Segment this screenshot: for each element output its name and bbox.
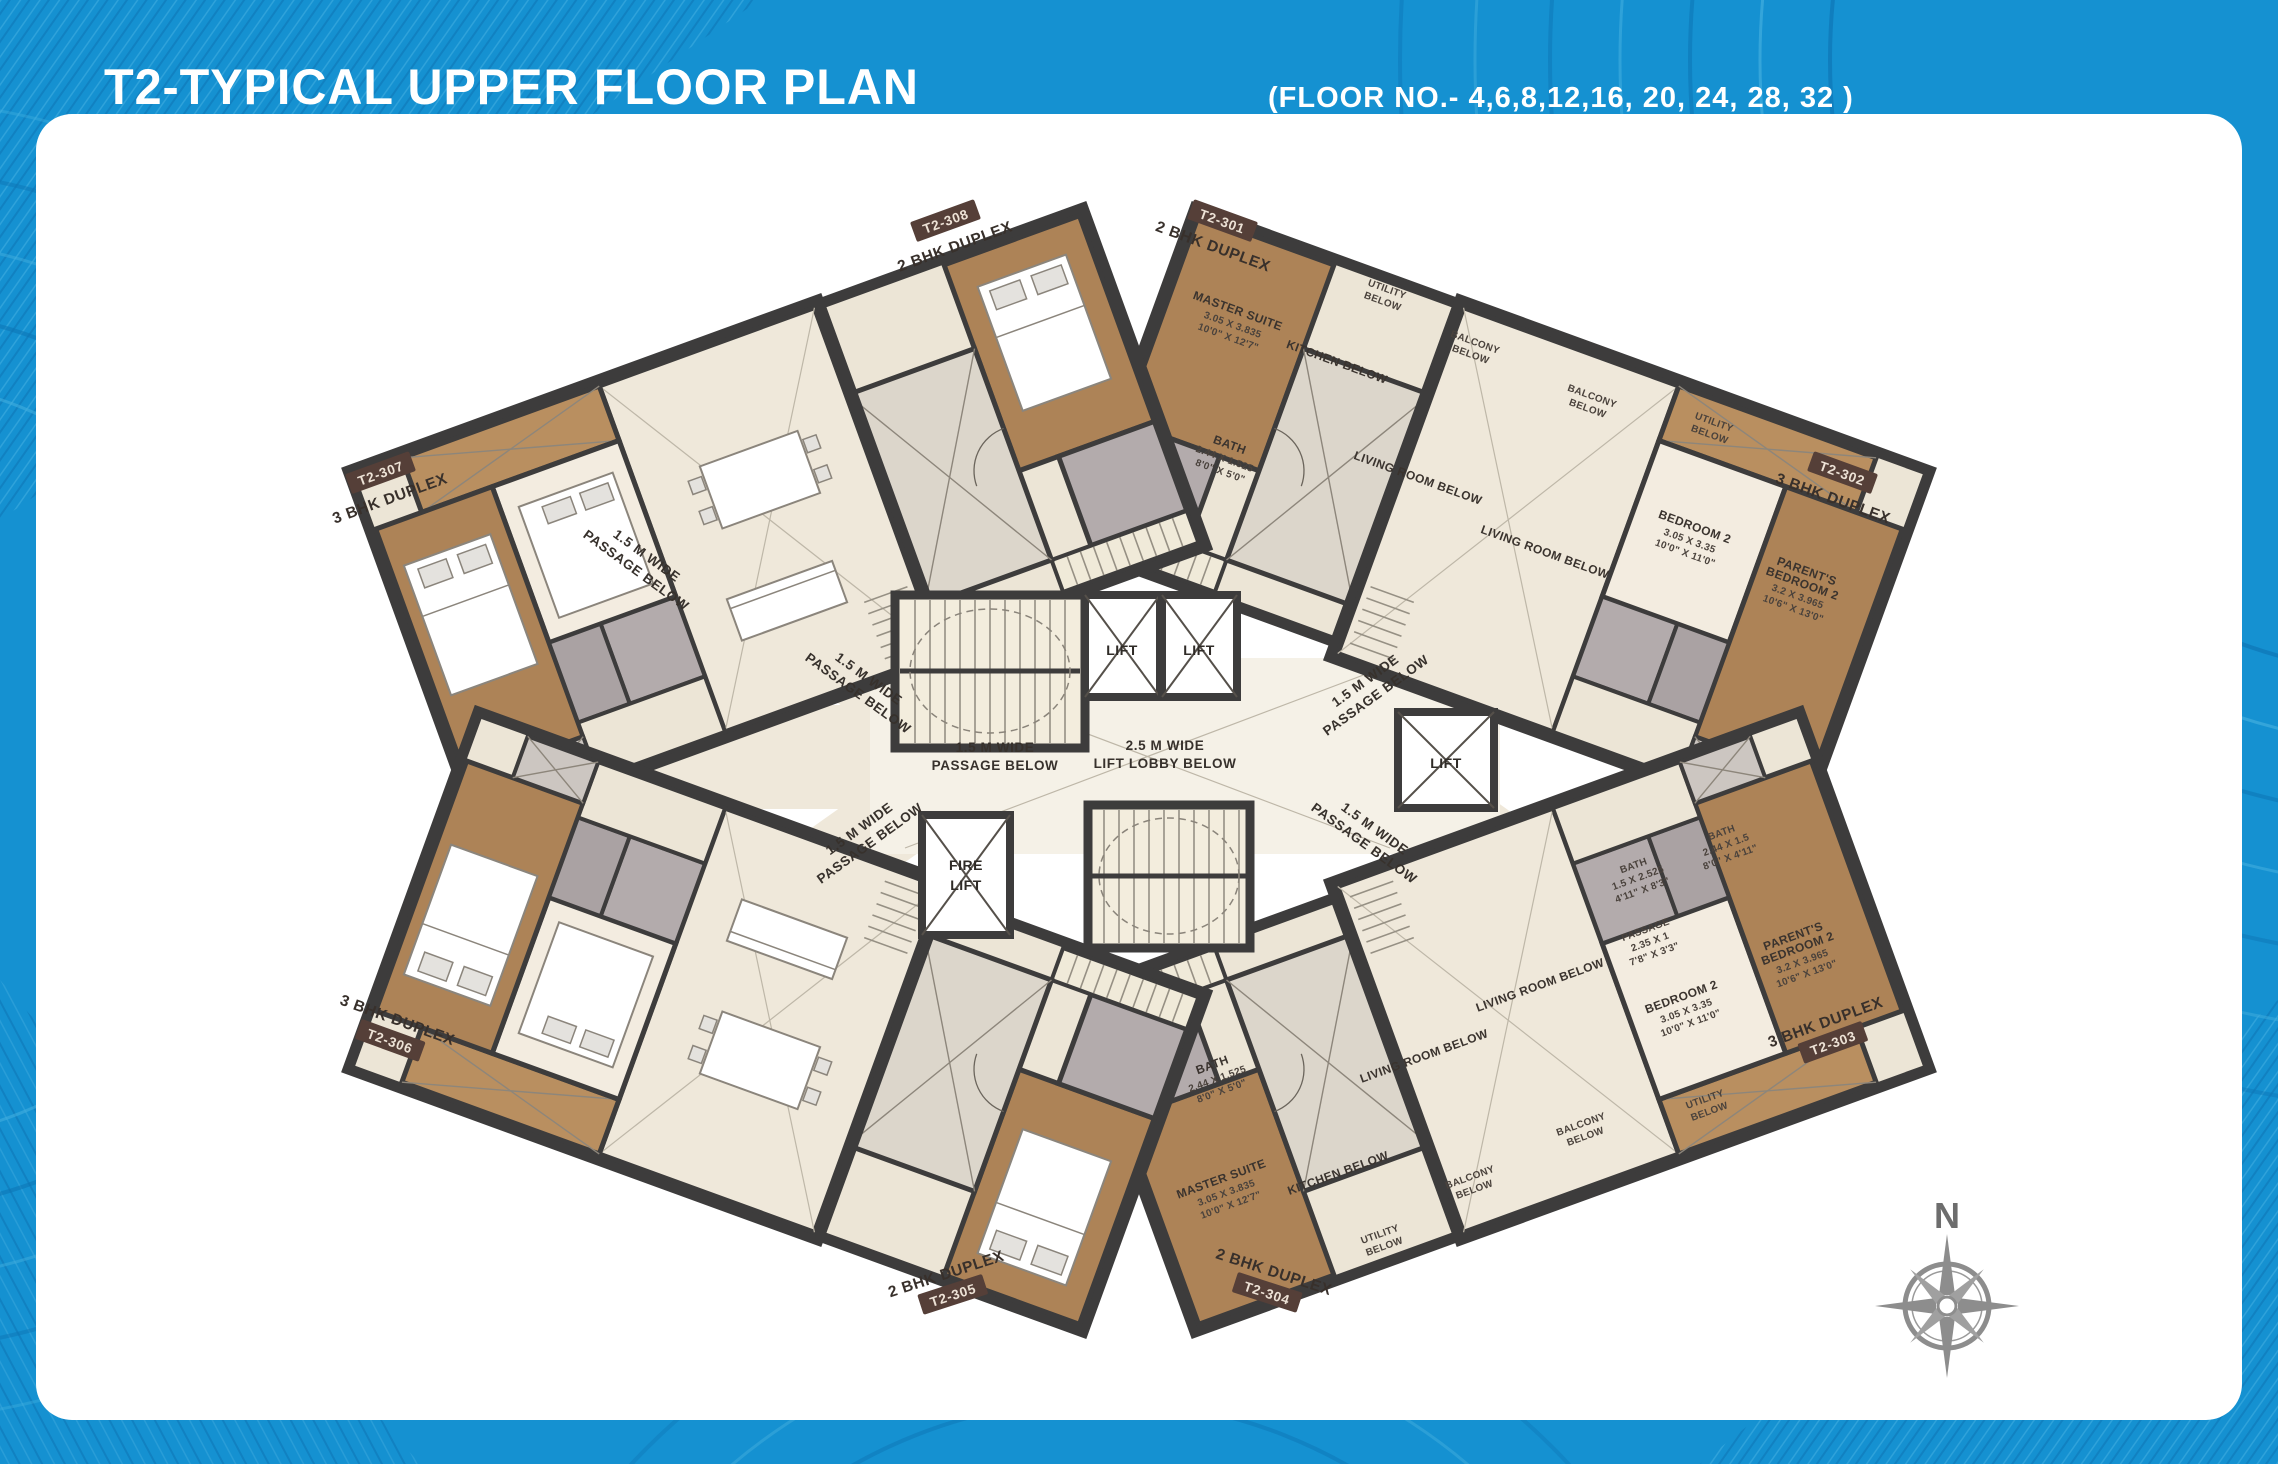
svg-text:1.5 M WIDE: 1.5 M WIDE [956, 740, 1035, 755]
core-staircase-bottom [1088, 805, 1250, 948]
lift-3-label: LIFT [1430, 755, 1462, 771]
core-lift-bank: LIFT LIFT [1085, 595, 1237, 697]
floor-plan: LIFT LIFT LIFT FIRE LIFT 1.5 M WIDE PASS… [0, 0, 2278, 1464]
lift-2-label: LIFT [1183, 642, 1215, 658]
compass-north-label: N [1934, 1195, 1960, 1236]
core-lift-right: LIFT [1398, 712, 1494, 808]
lift-1-label: LIFT [1106, 642, 1138, 658]
core-staircase-top [895, 595, 1085, 748]
fire-lift-label-line2: LIFT [950, 877, 982, 893]
core-fire-lift: FIRE LIFT [922, 815, 1010, 935]
svg-text:2.5 M WIDE: 2.5 M WIDE [1126, 738, 1205, 753]
fire-lift-label-line1: FIRE [949, 857, 983, 873]
svg-text:PASSAGE BELOW: PASSAGE BELOW [932, 758, 1059, 773]
compass-rose: N [1875, 1195, 2019, 1378]
svg-text:LIFT LOBBY BELOW: LIFT LOBBY BELOW [1094, 756, 1237, 771]
